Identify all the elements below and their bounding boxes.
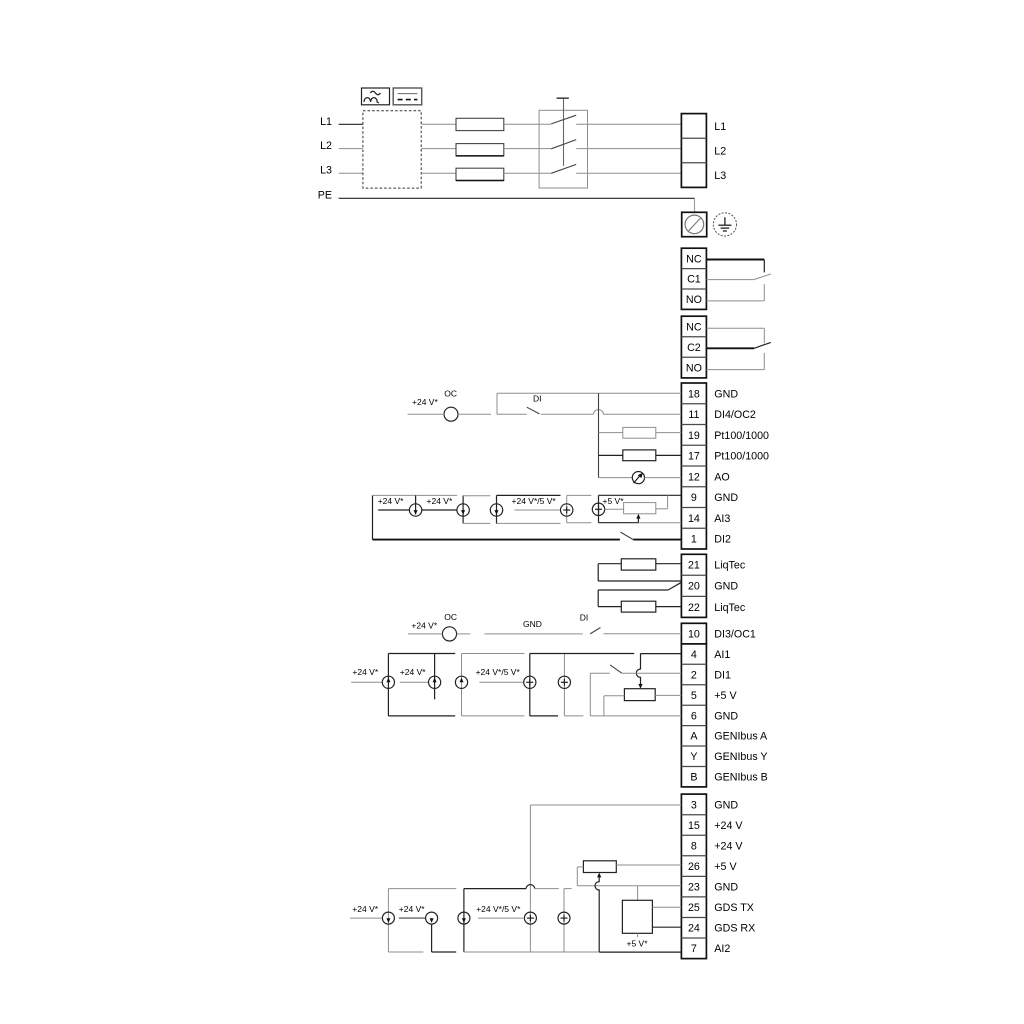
svg-text:GDS TX: GDS TX: [714, 902, 754, 914]
svg-text:+24 V*: +24 V*: [411, 620, 437, 630]
svg-text:DI4/OC2: DI4/OC2: [714, 409, 756, 421]
svg-text:23: 23: [688, 882, 700, 894]
svg-text:+24 V*: +24 V*: [352, 904, 378, 914]
svg-text:21: 21: [688, 560, 700, 572]
svg-text:+24 V*: +24 V*: [400, 667, 426, 677]
svg-text:5: 5: [691, 690, 697, 702]
svg-text:GENIbus B: GENIbus B: [714, 772, 767, 784]
svg-text:L1: L1: [714, 121, 726, 133]
svg-text:GENIbus Y: GENIbus Y: [714, 751, 767, 763]
svg-text:GND: GND: [714, 882, 738, 894]
svg-text:+24 V: +24 V: [714, 820, 743, 832]
svg-text:AO: AO: [714, 471, 729, 483]
svg-text:+24 V*: +24 V*: [427, 496, 453, 506]
svg-text:20: 20: [688, 581, 700, 593]
svg-text:DI2: DI2: [714, 534, 731, 546]
svg-text:C2: C2: [687, 342, 701, 354]
svg-text:10: 10: [688, 629, 700, 641]
svg-text:OC: OC: [444, 389, 457, 399]
svg-text:6: 6: [691, 710, 697, 722]
svg-text:GND: GND: [714, 799, 738, 811]
svg-text:Pt100/1000: Pt100/1000: [714, 451, 769, 463]
svg-text:26: 26: [688, 861, 700, 873]
svg-text:GND: GND: [523, 619, 542, 629]
svg-text:+24 V: +24 V: [714, 840, 743, 852]
svg-text:AI1: AI1: [714, 649, 730, 661]
svg-text:GDS RX: GDS RX: [714, 923, 755, 935]
svg-text:DI: DI: [533, 393, 542, 403]
svg-text:14: 14: [688, 513, 700, 525]
svg-text:DI1: DI1: [714, 669, 731, 681]
svg-text:+5 V*: +5 V*: [627, 938, 649, 948]
svg-text:+5 V: +5 V: [714, 861, 737, 873]
svg-text:4: 4: [691, 649, 697, 661]
svg-text:Pt100/1000: Pt100/1000: [714, 430, 769, 442]
svg-text:GND: GND: [714, 492, 738, 504]
svg-text:L3: L3: [714, 170, 726, 182]
svg-text:+24 V*/5 V*: +24 V*/5 V*: [476, 667, 521, 677]
svg-text:PE: PE: [318, 190, 332, 202]
svg-text:12: 12: [688, 471, 700, 483]
svg-text:GND: GND: [714, 388, 738, 400]
svg-text:NO: NO: [686, 294, 702, 306]
svg-text:18: 18: [688, 388, 700, 400]
svg-text:DI3/OC1: DI3/OC1: [714, 629, 756, 641]
svg-text:8: 8: [691, 840, 697, 852]
svg-text:L3: L3: [320, 165, 332, 177]
svg-text:NO: NO: [686, 363, 702, 375]
svg-text:DI: DI: [580, 613, 589, 623]
svg-text:+5 V: +5 V: [714, 690, 737, 702]
svg-text:9: 9: [691, 492, 697, 504]
svg-text:LiqTec: LiqTec: [714, 560, 746, 572]
svg-text:Y: Y: [690, 751, 697, 763]
svg-text:1: 1: [691, 534, 697, 546]
svg-text:15: 15: [688, 820, 700, 832]
svg-text:11: 11: [688, 409, 699, 421]
svg-text:17: 17: [688, 451, 700, 463]
svg-text:GENIbus A: GENIbus A: [714, 731, 768, 743]
svg-text:7: 7: [691, 943, 697, 955]
svg-text:2: 2: [691, 669, 697, 681]
svg-text:AI2: AI2: [714, 943, 730, 955]
svg-text:24: 24: [688, 923, 700, 935]
svg-text:GND: GND: [714, 710, 738, 722]
svg-text:AI3: AI3: [714, 513, 730, 525]
svg-text:L1: L1: [320, 116, 332, 128]
svg-text:B: B: [690, 772, 697, 784]
svg-text:GND: GND: [714, 581, 738, 593]
svg-text:L2: L2: [320, 140, 332, 152]
svg-text:OC: OC: [444, 612, 457, 622]
svg-text:19: 19: [688, 430, 700, 442]
svg-text:L2: L2: [714, 145, 726, 157]
svg-text:NC: NC: [686, 321, 702, 333]
svg-text:25: 25: [688, 902, 700, 914]
svg-text:+24 V*: +24 V*: [399, 904, 425, 914]
svg-text:+24 V*: +24 V*: [352, 667, 378, 677]
svg-text:NC: NC: [686, 253, 702, 265]
svg-text:+24 V*/5 V*: +24 V*/5 V*: [512, 496, 557, 506]
svg-text:+24 V*: +24 V*: [378, 496, 404, 506]
svg-text:A: A: [690, 731, 698, 743]
svg-text:C1: C1: [687, 274, 701, 286]
svg-text:+24 V*/5 V*: +24 V*/5 V*: [476, 904, 521, 914]
svg-text:+5 V*: +5 V*: [603, 496, 625, 506]
svg-text:+24 V*: +24 V*: [412, 397, 438, 407]
svg-text:LiqTec: LiqTec: [714, 602, 746, 614]
svg-text:22: 22: [688, 602, 700, 614]
svg-text:3: 3: [691, 799, 697, 811]
